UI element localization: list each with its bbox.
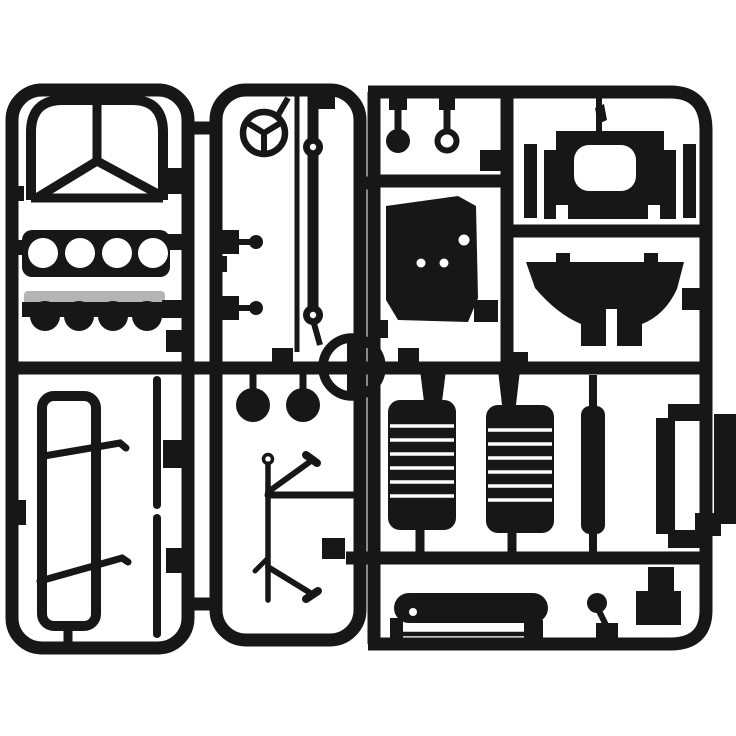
part-radiator-grille-1 (388, 370, 456, 560)
part-gear-knob (587, 593, 618, 641)
sprue-image (0, 0, 736, 736)
part-seat-base (526, 253, 708, 346)
part-brake-drums (236, 374, 320, 422)
part-mercedes-star (243, 98, 288, 154)
sprue-photo (0, 0, 736, 736)
part-fender-strip (22, 291, 188, 331)
part-wiper-arms (255, 455, 354, 601)
part-cab-windshield-frame (31, 100, 163, 200)
part-drive-shaft (303, 92, 323, 345)
part-engine-block (374, 196, 498, 338)
part-radiator-grille-2 (486, 370, 554, 560)
part-small-pegs (222, 230, 263, 320)
part-small-plate (636, 591, 681, 625)
part-steering-wheel (323, 338, 381, 396)
part-cab-back-panel (524, 96, 696, 219)
part-round-pins (386, 94, 457, 153)
part-thin-bar (581, 375, 605, 560)
part-side-bar-outer (714, 414, 736, 524)
part-front-panel-four-holes (12, 230, 188, 277)
part-linkage-rods (40, 443, 128, 581)
part-window-frame (42, 396, 96, 646)
